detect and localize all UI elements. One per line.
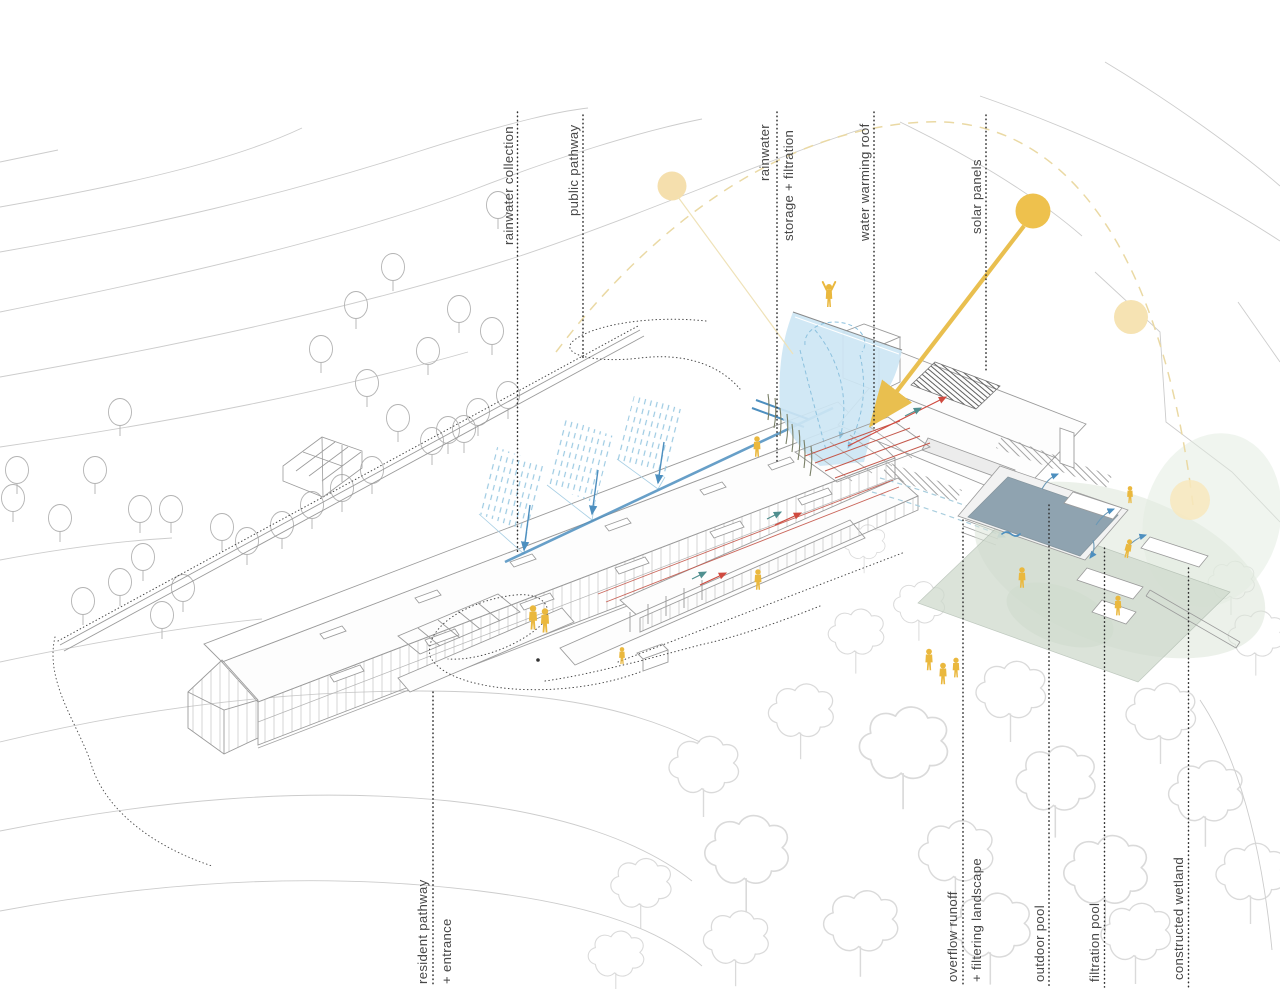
trellis-structure — [283, 437, 362, 497]
rain-hatch-3 — [617, 392, 683, 477]
sun-icon — [1016, 194, 1051, 229]
label-text: solar panels — [969, 159, 984, 234]
label-text: resident pathway — [415, 879, 430, 984]
label-text: + filtering landscape — [969, 858, 984, 982]
label-resident-pathway-entrance: resident pathway + entrance — [415, 692, 454, 986]
site-boundary-path — [53, 637, 212, 866]
label-text: outdoor pool — [1032, 905, 1047, 982]
rain-hatch-2 — [547, 418, 613, 503]
label-text: constructed wetland — [1171, 857, 1186, 980]
site-diagram: rainwater collection public pathway rain… — [0, 0, 1280, 989]
label-text: overflow runoff — [945, 891, 960, 982]
label-text: storage + filtration — [781, 130, 796, 241]
label-text: rainwater collection — [501, 126, 516, 245]
sun-faded-low-icon — [1170, 480, 1210, 520]
site-diagram-canvas: rainwater collection public pathway rain… — [0, 0, 1280, 989]
label-text: filtration pool — [1087, 903, 1102, 982]
label-text: public pathway — [566, 124, 581, 216]
label-text: rainwater — [757, 124, 772, 181]
label-text: + entrance — [439, 918, 454, 984]
back-building — [188, 402, 895, 754]
sun-faded-morning-icon — [658, 172, 687, 201]
label-solar-panels: solar panels — [969, 115, 986, 370]
sun-faded-afternoon-icon — [1114, 300, 1148, 334]
path-node — [536, 658, 540, 662]
label-text: water warming roof — [857, 123, 872, 242]
